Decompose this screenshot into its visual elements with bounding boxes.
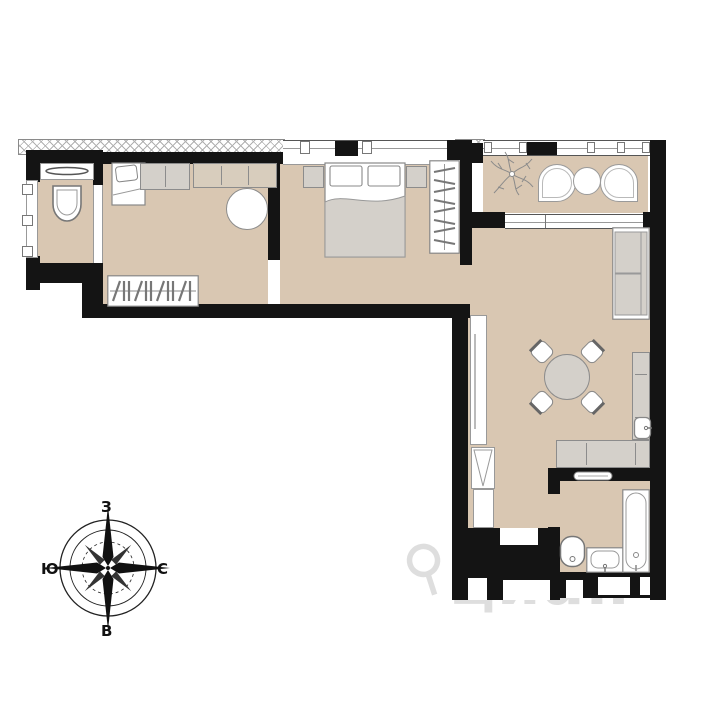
nightstand-icon <box>303 166 324 188</box>
wall <box>460 150 472 265</box>
double-bed-icon <box>324 162 406 258</box>
entrance-opening <box>500 528 538 545</box>
wall <box>335 141 358 156</box>
kitchen-cabinet-icon <box>473 489 494 528</box>
wall-tie <box>22 184 33 195</box>
wall <box>452 304 468 545</box>
kitchen-sink-icon <box>633 416 653 440</box>
window-mullion <box>642 142 650 153</box>
armchair-icon <box>538 164 576 202</box>
bathtub-icon <box>622 489 650 573</box>
open-wardrobe-icon <box>429 160 460 254</box>
stair-hall-opening <box>640 577 650 595</box>
tv-stand-icon <box>470 315 487 445</box>
floor-plan-canvas: циан <box>0 0 701 701</box>
stair-hall-opening <box>598 577 630 595</box>
wall <box>93 152 103 185</box>
wc-door <box>93 185 103 263</box>
dining-table-icon <box>544 354 590 400</box>
toilet-icon <box>50 184 84 230</box>
wall-tie <box>22 215 33 226</box>
wall <box>452 528 500 545</box>
wall <box>470 143 483 163</box>
wall <box>26 150 40 182</box>
wardrobe-icon <box>140 163 190 190</box>
window-mullion <box>617 142 625 153</box>
window-mullion <box>300 141 310 154</box>
washbasin-icon <box>586 547 624 574</box>
coat-rack-icon <box>107 275 199 307</box>
compass-label-west: З <box>101 498 112 516</box>
map-pin-icon <box>403 538 449 600</box>
window-mullion <box>362 141 372 154</box>
armchair-icon <box>600 164 638 202</box>
stair-hall-opening <box>566 580 583 598</box>
toilet-icon <box>559 535 586 569</box>
wardrobe-icon <box>193 163 277 188</box>
wall-tie <box>22 246 33 257</box>
washbasin-icon <box>44 166 90 176</box>
window-mullion <box>587 142 595 153</box>
fridge-icon <box>471 447 495 489</box>
stair-hall-opening <box>503 580 550 600</box>
wall <box>548 481 560 494</box>
round-table-icon <box>226 188 268 230</box>
plant-icon <box>486 149 538 197</box>
compass-label-north: С <box>157 560 168 578</box>
stair-hall-opening <box>468 578 487 600</box>
wall <box>470 212 505 228</box>
wall <box>650 140 666 600</box>
coffee-table-icon <box>573 167 601 195</box>
nightstand-icon <box>406 166 427 188</box>
sofa-icon <box>612 227 650 320</box>
compass-label-south: Ю <box>41 560 59 578</box>
towel-rail-icon <box>573 471 613 481</box>
kitchen-counter-icon <box>556 440 650 468</box>
compass-label-east: В <box>101 622 112 640</box>
